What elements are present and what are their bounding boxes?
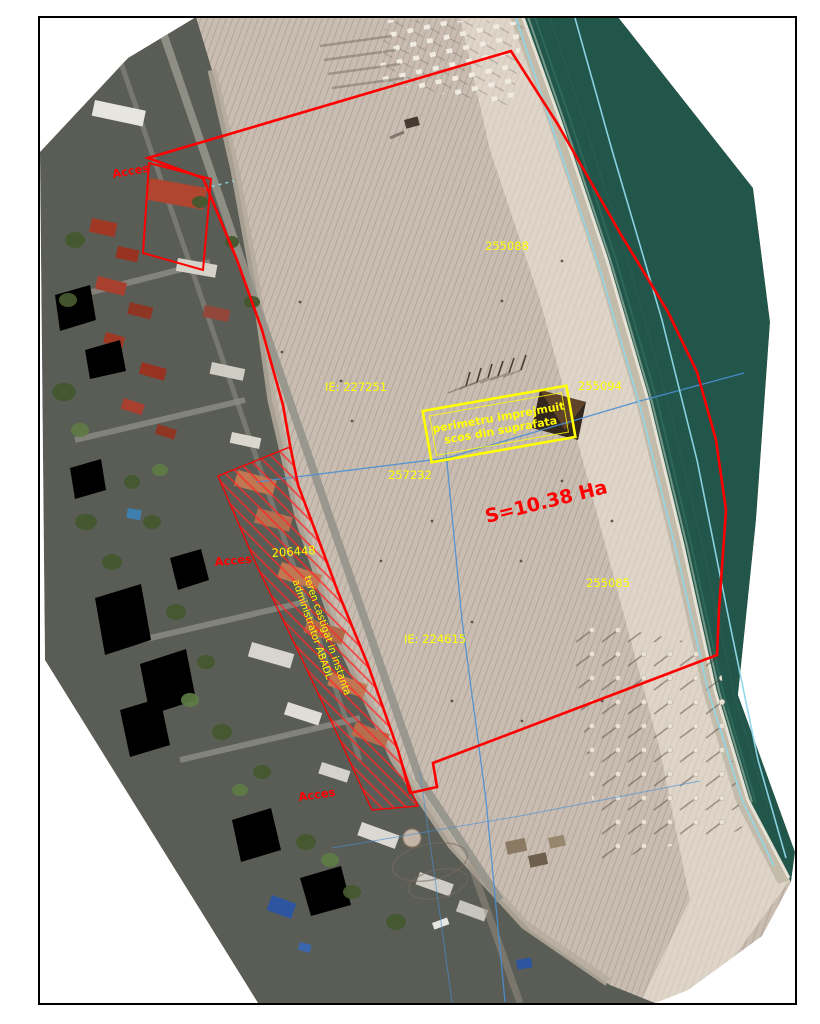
parcel-label-257232: 257232 [388, 468, 432, 482]
plan-sheet: 255088 IE: 227251 255094 257232 206448 2… [0, 0, 820, 1024]
parcel-label-255094: 255094 [578, 379, 622, 393]
sheet-border: 255088 IE: 227251 255094 257232 206448 2… [38, 16, 797, 1005]
parcel-label-255088: 255088 [485, 239, 529, 253]
orthophoto-map: 255088 IE: 227251 255094 257232 206448 2… [40, 18, 795, 1003]
orthophoto-terrain [40, 18, 795, 1003]
parcel-label-ie-227251: IE: 227251 [325, 380, 387, 394]
parcel-label-ie-224615: IE: 224615 [404, 632, 466, 646]
parcel-label-255085: 255085 [586, 576, 630, 590]
